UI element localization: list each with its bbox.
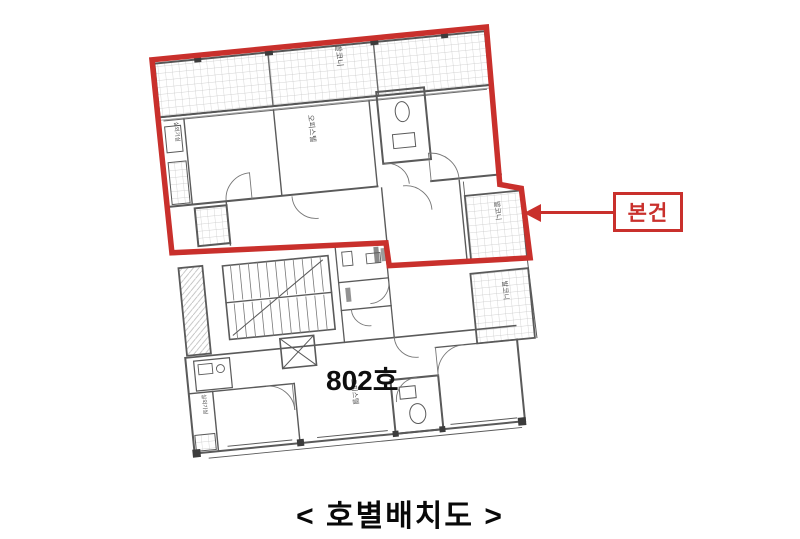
column-mark [297, 439, 305, 447]
figure-caption: < 호별배치도 > [0, 491, 800, 535]
unit-802-label: 802호 [326, 359, 398, 399]
page: { "figure": { "caption": "< 호별배치도 >", "u… [0, 0, 800, 539]
column-mark [192, 449, 201, 458]
floorplan-drawing: 발코니 발코니 발코니 오피스텔 오피스텔 실외기실 실외기실 [0, 0, 800, 539]
column-mark [392, 431, 399, 438]
utility-lower-label: 실외기실 [200, 394, 210, 415]
column-mark [518, 417, 527, 426]
room-upper-label: 오피스텔 [306, 114, 318, 142]
subject-callout-label: 본건 [628, 197, 669, 227]
utility-upper-label: 실외기실 [172, 121, 182, 142]
callout-arrow-line [539, 211, 615, 214]
column-mark [439, 426, 446, 433]
balcony-low-hatch [470, 268, 535, 343]
callout-arrowhead-icon [524, 204, 541, 222]
subject-callout-box: 본건 [613, 192, 683, 232]
